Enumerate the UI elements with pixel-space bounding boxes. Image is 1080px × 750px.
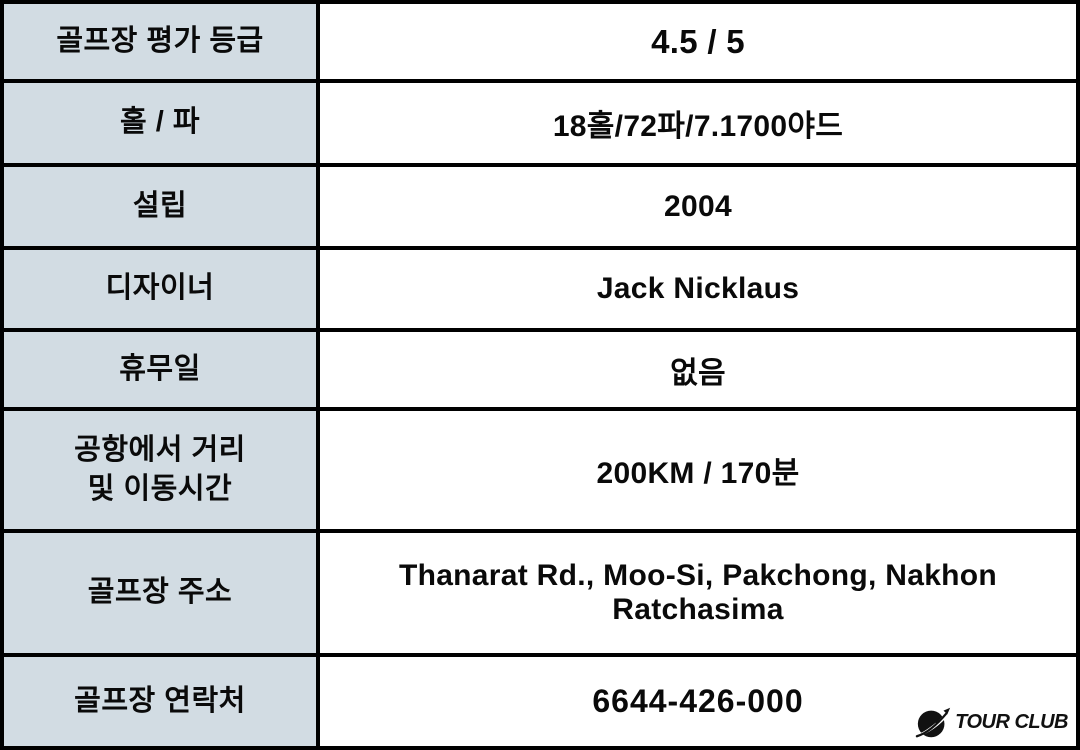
label-text-line1: 공항에서 거리: [74, 431, 246, 470]
label-text-line2: 및 이동시간: [88, 470, 232, 509]
row-label-closed-days: 휴무일: [4, 332, 316, 407]
row-value-contact: 6644-426-000 TOUR CLUB: [320, 657, 1076, 746]
row-value-rating: 4.5 / 5: [320, 4, 1076, 79]
value-text: 4.5 / 5: [651, 23, 745, 61]
row-value-holes-par: 18홀/72파/7.1700야드: [320, 83, 1076, 163]
row-label-address: 골프장 주소: [4, 533, 316, 653]
row-value-airport-distance: 200KM / 170분: [320, 411, 1076, 529]
value-text: 없음: [670, 348, 726, 392]
label-text: 설립: [133, 187, 187, 226]
value-text: 200KM / 170분: [597, 448, 800, 492]
row-value-closed-days: 없음: [320, 332, 1076, 407]
row-value-established: 2004: [320, 167, 1076, 246]
row-label-established: 설립: [4, 167, 316, 246]
value-text: Jack Nicklaus: [597, 272, 799, 306]
row-value-address: Thanarat Rd., Moo-Si, Pakchong, Nakhon R…: [320, 533, 1076, 653]
plane-swoosh-circle-icon: [915, 703, 953, 741]
golf-course-info-table: 골프장 평가 등급 4.5 / 5 홀 / 파 18홀/72파/7.1700야드…: [0, 0, 1080, 750]
label-text: 골프장 평가 등급: [56, 22, 263, 61]
label-text: 골프장 주소: [88, 573, 232, 612]
tour-club-logo: TOUR CLUB: [915, 703, 1068, 741]
label-text: 디자이너: [106, 269, 215, 308]
label-text: 휴무일: [119, 350, 201, 389]
label-text: 골프장 연락처: [74, 682, 246, 721]
label-text: 홀 / 파: [120, 103, 200, 142]
row-label-rating: 골프장 평가 등급: [4, 4, 316, 79]
row-label-contact: 골프장 연락처: [4, 657, 316, 746]
value-text: 2004: [664, 190, 732, 224]
row-label-airport-distance: 공항에서 거리 및 이동시간: [4, 411, 316, 529]
row-value-designer: Jack Nicklaus: [320, 250, 1076, 328]
row-label-designer: 디자이너: [4, 250, 316, 328]
value-text: Thanarat Rd., Moo-Si, Pakchong, Nakhon R…: [368, 559, 1028, 627]
value-text: 18홀/72파/7.1700야드: [553, 101, 843, 145]
value-text: 6644-426-000: [592, 683, 803, 720]
logo-brand-text: TOUR CLUB: [955, 711, 1068, 734]
row-label-holes-par: 홀 / 파: [4, 83, 316, 163]
